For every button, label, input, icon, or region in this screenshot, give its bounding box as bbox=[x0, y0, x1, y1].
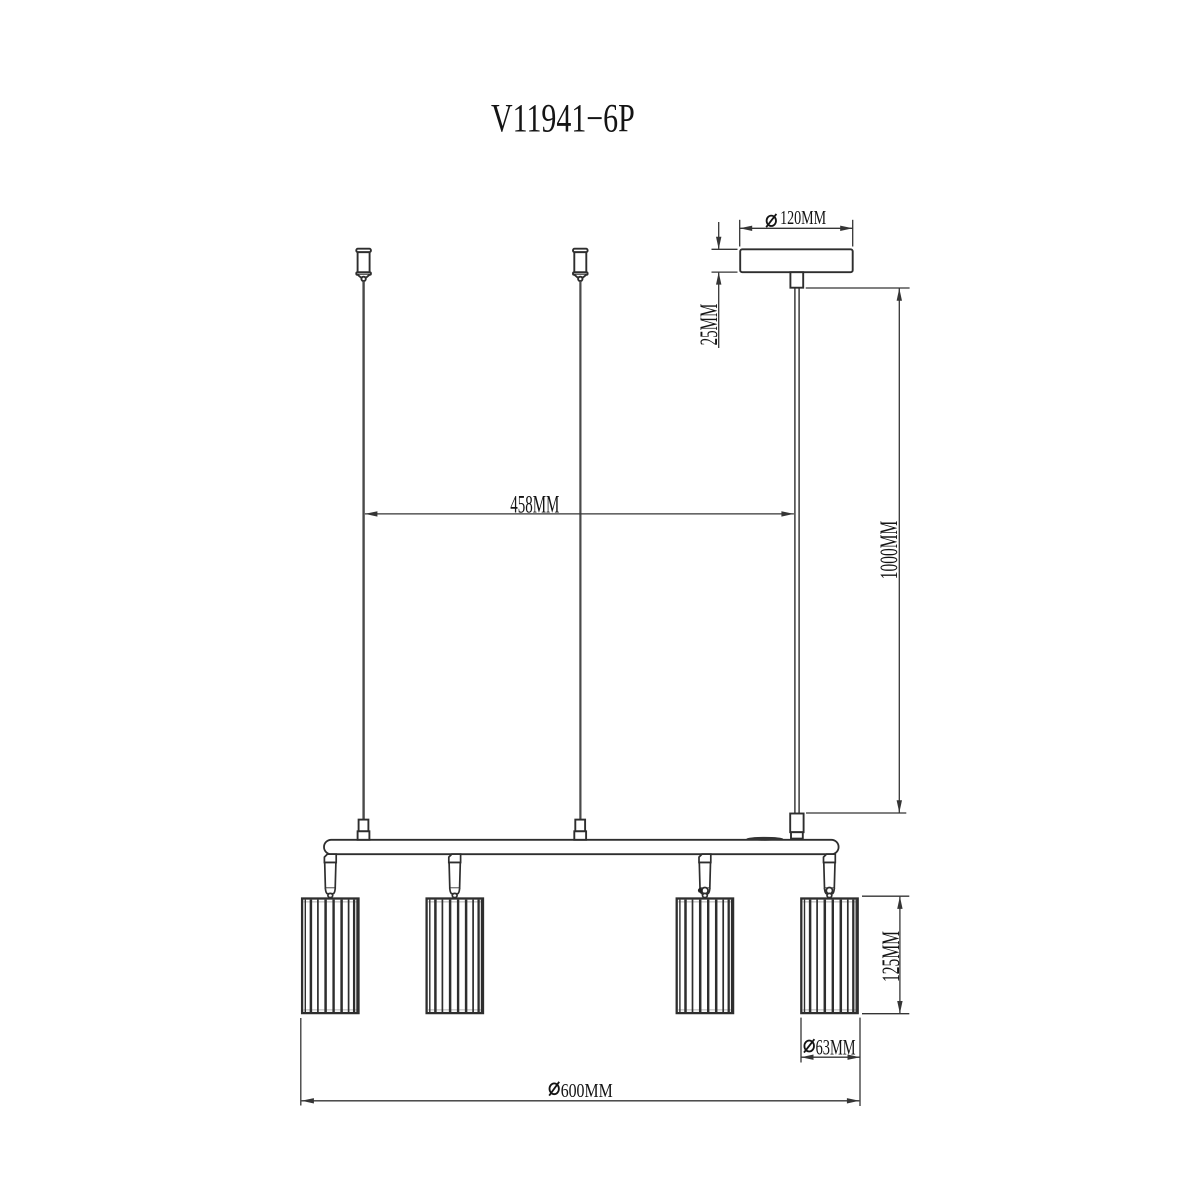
svg-text:63MM: 63MM bbox=[816, 1034, 856, 1059]
svg-text:600MM: 600MM bbox=[561, 1080, 613, 1102]
svg-text:125MM: 125MM bbox=[878, 931, 905, 982]
svg-text:1000MM: 1000MM bbox=[876, 521, 903, 579]
svg-text:V11941−6P: V11941−6P bbox=[491, 96, 635, 141]
svg-text:120MM: 120MM bbox=[780, 207, 826, 229]
svg-text:458MM: 458MM bbox=[510, 491, 559, 518]
svg-text:25MM: 25MM bbox=[696, 304, 723, 346]
